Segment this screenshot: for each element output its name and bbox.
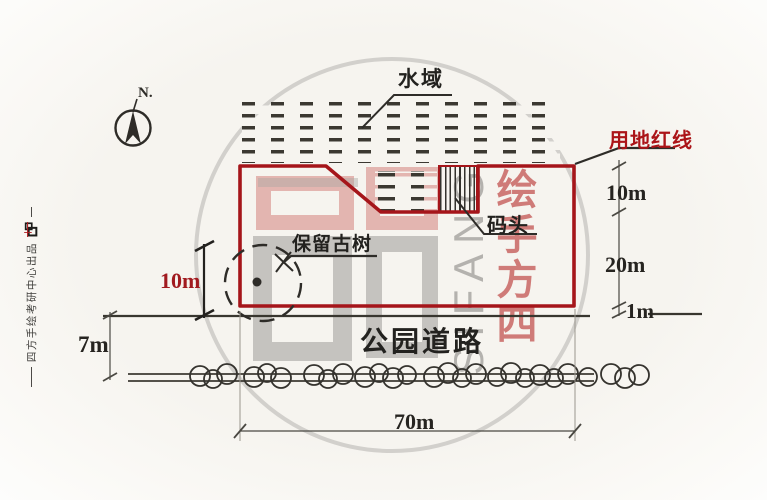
producer-logo-icon [22, 222, 40, 237]
producer-mark: 四方手绘考研中心出品 [16, 207, 46, 387]
dimension-right-1m: 1m [626, 299, 654, 324]
street-tree-line [128, 374, 594, 381]
park-road-label: 公园道路 [360, 320, 484, 360]
producer-mark-dash [31, 207, 32, 217]
dimension-road-7m: 7m [78, 332, 109, 358]
producer-mark-dash [31, 367, 32, 387]
water-area-label: 水域 [398, 63, 444, 93]
dimension-frontage-70m: 70m [394, 409, 434, 435]
north-arrow-icon [116, 99, 151, 146]
site-plan-sketch: SIFANG 绘手方四 [0, 0, 767, 500]
producer-mark-text: 四方手绘考研中心出品 [24, 242, 39, 362]
dock-label: 码头 [487, 209, 529, 238]
water-label-leader [362, 95, 452, 128]
site-red-line-label: 用地红线 [609, 124, 693, 153]
dimension-right-20m: 20m [605, 252, 645, 278]
plan-linework [0, 0, 767, 500]
north-label: N. [138, 85, 153, 102]
ancient-tree-label: 保留古树 [292, 229, 372, 256]
street-trees [190, 363, 649, 388]
dimension-tree-offset-10m: 10m [160, 268, 200, 294]
dimension-right-10m: 10m [606, 180, 646, 206]
tree-label-leader [283, 256, 377, 263]
